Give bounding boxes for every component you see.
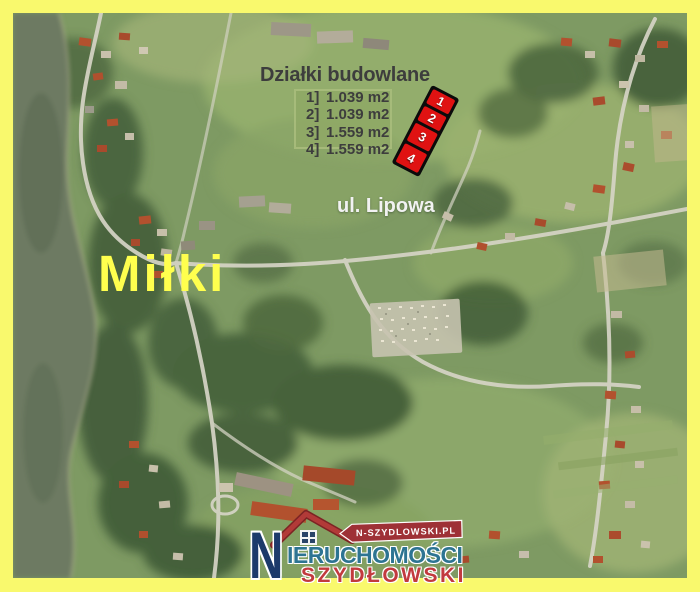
- cemetery: [370, 299, 463, 358]
- website-banner: N-SZYDLOWSKI.PL: [339, 519, 464, 544]
- window-pane: [310, 532, 316, 537]
- town-label: Miłki: [98, 246, 226, 302]
- plot-area: 1.559 m2: [326, 141, 389, 158]
- plot-list-item: 1] 1.039 m2: [306, 89, 389, 106]
- plot-number: 3]: [306, 124, 326, 141]
- window-pane: [302, 532, 308, 537]
- plot-area: 1.559 m2: [326, 124, 389, 141]
- listing-title: Działki budowlane: [260, 64, 430, 87]
- plot-area: 1.039 m2: [326, 89, 389, 106]
- plot-area: 1.039 m2: [326, 106, 389, 123]
- photo-frame: Działki budowlane 1] 1.039 m2 2] 1.039 m…: [0, 0, 700, 592]
- plot-number: 1]: [306, 89, 326, 106]
- brand-surname: SZYDŁOWSKI: [301, 564, 466, 588]
- brand-initial: N: [249, 522, 283, 588]
- plot-list-item: 3] 1.559 m2: [306, 124, 389, 141]
- plot-list-item: 4] 1.559 m2: [306, 141, 389, 158]
- plot-number: 4]: [306, 141, 326, 158]
- plot-list: 1] 1.039 m2 2] 1.039 m2 3] 1.559 m2 4] 1…: [306, 89, 389, 159]
- plot-list-item: 2] 1.039 m2: [306, 106, 389, 123]
- plot-number: 2]: [306, 106, 326, 123]
- brand-logo: N N-SZYDLOWSKI.PL IERUCHOMOŚCI SZYDŁOWSK…: [245, 505, 463, 592]
- street-label: ul. Lipowa: [337, 195, 435, 218]
